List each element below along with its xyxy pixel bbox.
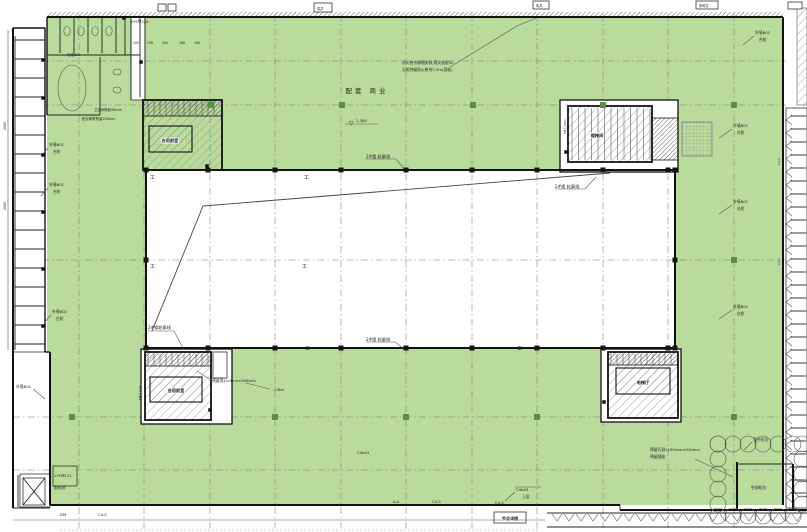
annotation-text: 160 [179,41,185,45]
annotation-text: 防火卷帘随墙安装,耐火极限3h [402,60,454,65]
annotation-text: 预留孔洞1190mm×910mm [650,447,700,452]
annotation-text: 合用前室 [168,387,186,394]
column-marker [403,414,409,420]
annotation-text: 楼梯间 [591,132,604,139]
column-marker [600,102,606,108]
annotation-text: 台阶 [53,149,61,154]
annotation-text: 2#楼 轮廓线 [555,183,580,190]
column-marker [208,102,214,108]
door-block [205,164,209,168]
shaft-box [213,352,227,378]
column-marker [673,346,678,351]
column-marker [339,346,344,351]
annotation-text: 配电间 [54,485,66,490]
annotation-text: 2#楼 轮廓线 [366,153,391,160]
annotation-text: 配套 商业 [345,86,388,95]
annotation-text: LFM甲224 [130,19,149,24]
annotation-text: 预留洞110mm×500mm [212,378,256,383]
column-marker [273,168,278,173]
annotation-text: 风井 [317,6,323,11]
floorplan-svg: 配套 商业防火卷帘随墙安装,耐火极限3h无机特级防火卷帘2.5m(双轨)2#楼 … [0,0,807,532]
annotation-text: 预留插座 [650,454,665,459]
annotation-text: 190 [194,41,200,45]
column-marker [673,258,678,263]
annotation-text: 台阶 [737,130,745,135]
annotation-text: C4b03 [516,487,529,492]
northeast-hatch-strip [797,8,807,105]
column-marker [601,346,606,351]
annotation-text: 外墙B01 [733,123,749,128]
annotation-text: 2#楼 轮廓线 [366,336,391,343]
annotation-text: 台阶 [53,189,61,194]
annotation-text: 工 [302,264,307,270]
annotation-text: C4b4 [274,387,284,392]
annotation-text: 室外机位 [753,437,768,442]
column-marker [731,414,737,420]
column-marker [731,102,737,108]
annotation-text: 400 [162,41,168,45]
door-block [41,267,45,271]
annotation-text: 工 [150,175,155,181]
annotation-text: C4-5 [777,158,781,165]
annotation-text: 外墙B01 [49,142,65,147]
annotation-text: 工 [150,264,155,270]
annotation-text: 2#楼轮廓线 [148,324,172,331]
annotation-text: 上层 [522,494,530,499]
column-marker [144,346,149,351]
annotation-text: 台阶 [759,37,767,42]
shaft-block-ne [652,118,678,160]
column-marker [339,102,345,108]
vent-box [788,2,802,9]
louver-grille-block [682,122,712,156]
annotation-text: 风井 [536,3,542,8]
annotation-text: A-A [393,499,400,504]
annotation-text: 电梯厅 [637,379,650,386]
annotation-text: 外墙B01 [733,304,749,309]
door-block [41,96,45,100]
annotation-text: 台阶 [737,206,745,211]
annotation-text: C4b03 [357,450,370,455]
annotation-text: 4000 [3,202,7,210]
annotation-text: FM乙1021 [562,119,567,134]
column-marker [470,346,475,351]
column-marker [535,346,540,351]
annotation-text: 1.380 [356,118,367,123]
annotation-text: 低墙B01 [67,52,80,57]
column-marker [272,414,278,420]
annotation-text: DM [60,512,66,517]
column-marker [666,346,671,351]
annotation-text: 230 [147,41,153,45]
door-block [564,150,568,154]
column-marker [535,168,540,173]
annotation-text: 合用前室 [162,137,180,144]
stair-flight-se [608,352,678,365]
column-marker [69,414,75,420]
annotation-text: 1.FM甲124 [54,474,71,478]
annotation-text: 工 [517,346,522,352]
annotation-text: C4-5 [98,512,107,517]
door-block [122,16,126,20]
courtyard-void [146,171,675,348]
column-marker [470,102,476,108]
annotation-text: 外墙B01 [755,30,771,35]
annotation-text: 4000 [3,122,7,130]
door-block [41,153,45,157]
door-block [41,58,45,62]
column-marker [666,168,671,173]
annotation-text: C4-5 [495,500,504,505]
column-marker [601,168,606,173]
door-block [139,60,143,64]
annotation-text: 外墙B01 [49,182,65,187]
column-marker [731,257,737,263]
annotation-text: 台阶 [737,311,745,316]
annotation-text: 卫生间降板50mm [94,107,123,112]
column-marker [144,168,149,173]
vent-box [158,4,166,11]
column-marker [206,168,211,173]
door-block [602,400,606,404]
column-marker [206,346,211,351]
stair-core-ne [568,106,652,162]
annotation-text: 外墙B01 [16,384,32,389]
column-marker [339,168,344,173]
corridor-strip [131,17,145,100]
column-marker [404,346,409,351]
column-marker [470,168,475,173]
annotation-text: 配合砌筑预留200mm [82,116,116,121]
door-block [208,408,212,412]
column-marker [673,168,678,173]
annotation-text: ▽ [349,120,354,127]
annotation-text: 外墙B01 [733,199,749,204]
floorplan-canvas: 配套 商业防火卷帘随墙安装,耐火极限3h无机特级防火卷帘2.5m(双轨)2#楼 … [0,0,807,532]
annotation-text: 台阶 [56,316,64,321]
west-colonnade [13,28,45,352]
door-block [41,210,45,214]
annotation-text: 工 [305,346,310,352]
door-block [41,324,45,328]
annotation-text: 外墙B01 [52,309,68,314]
column-marker [273,346,278,351]
annotation-text: 节点详图 [502,515,519,522]
column-marker [534,414,540,420]
annotation-text: 排风井 [699,3,709,8]
annotation-text: 空调机位 [751,485,766,490]
vent-box [168,4,176,11]
column-marker [404,168,409,173]
annotation-text: 工 [304,175,309,181]
annotation-text: FM乙1121 [137,385,142,400]
column-marker [144,258,149,263]
annotation-text: 无机特级防火卷帘2.5m(双轨) [402,67,453,72]
annotation-text: 200 [133,41,139,45]
annotation-text: C4-5 [777,258,781,265]
annotation-text: C4-5 [432,499,441,504]
